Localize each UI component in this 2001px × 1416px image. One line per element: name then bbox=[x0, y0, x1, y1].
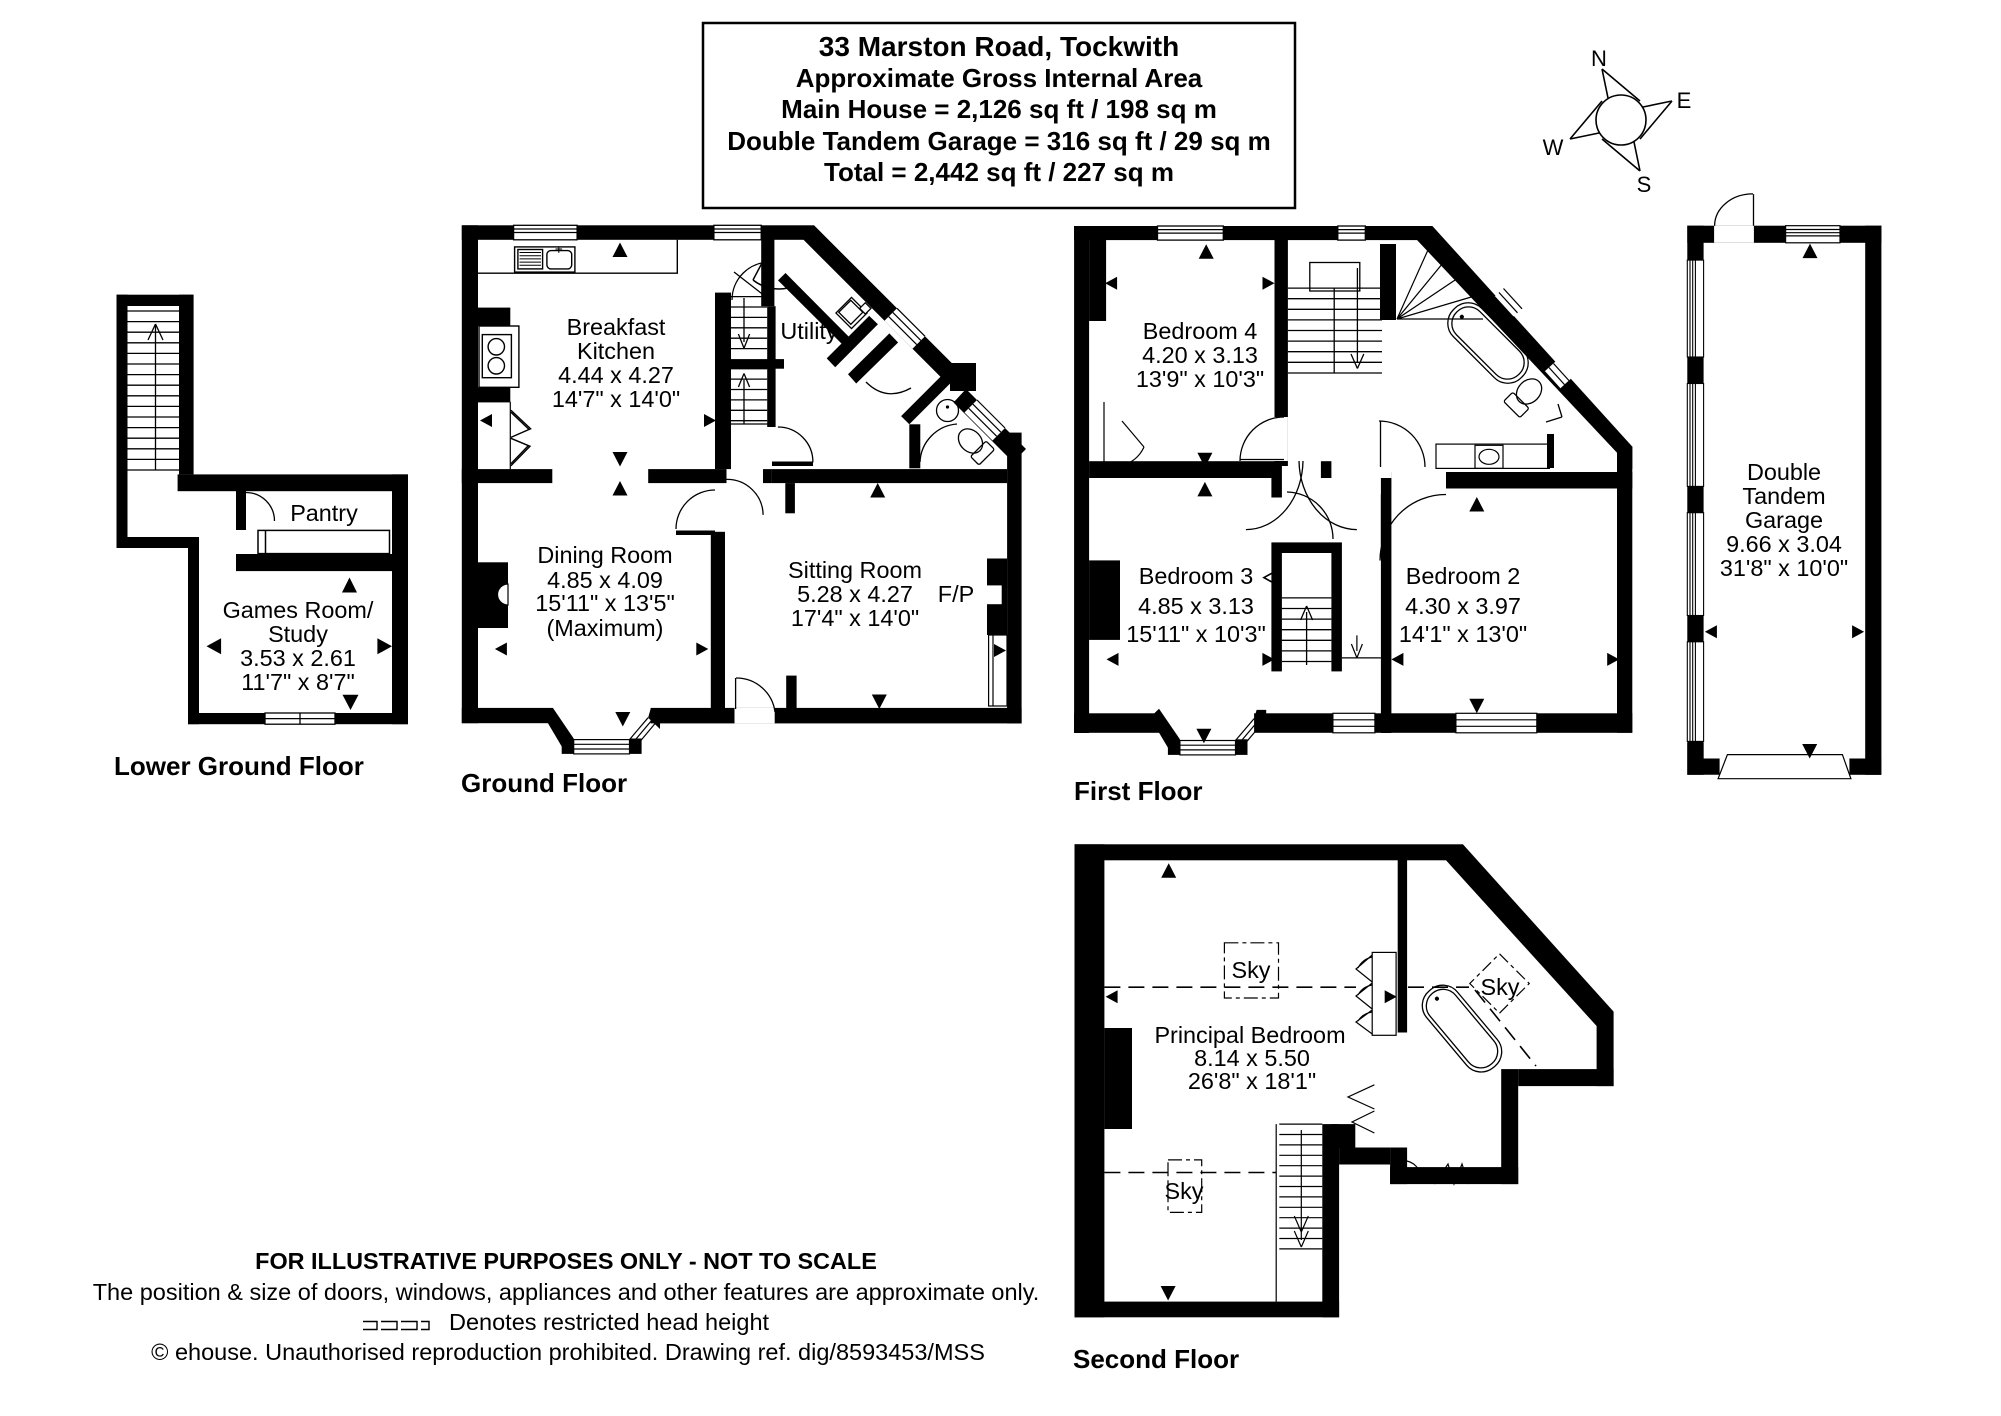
svg-text:4.44 x 4.27: 4.44 x 4.27 bbox=[558, 362, 674, 388]
svg-text:Sky: Sky bbox=[1481, 974, 1520, 1000]
svg-text:9.66 x 3.04: 9.66 x 3.04 bbox=[1726, 531, 1842, 557]
svg-text:Breakfast: Breakfast bbox=[567, 314, 666, 340]
svg-text:Second Floor: Second Floor bbox=[1073, 1344, 1239, 1374]
svg-text:3.53 x 2.61: 3.53 x 2.61 bbox=[240, 645, 356, 671]
svg-text:Pantry: Pantry bbox=[290, 500, 358, 526]
svg-text:Sky: Sky bbox=[1232, 957, 1271, 983]
svg-text:Bedroom 4: Bedroom 4 bbox=[1143, 318, 1257, 344]
svg-text:(Maximum): (Maximum) bbox=[547, 615, 664, 641]
svg-text:Main House = 2,126 sq ft / 198: Main House = 2,126 sq ft / 198 sq m bbox=[781, 94, 1217, 124]
svg-text:Games Room/: Games Room/ bbox=[223, 597, 374, 623]
svg-text:Garage: Garage bbox=[1745, 507, 1823, 533]
svg-text:Bedroom 2: Bedroom 2 bbox=[1406, 563, 1520, 589]
svg-text:© ehouse. Unauthorised reprodu: © ehouse. Unauthorised reproduction proh… bbox=[151, 1339, 985, 1365]
svg-text:11'7" x 8'7": 11'7" x 8'7" bbox=[241, 669, 355, 695]
svg-text:The position & size of doors,: The position & size of doors, windows, a… bbox=[93, 1279, 1040, 1305]
svg-text:14'7" x 14'0": 14'7" x 14'0" bbox=[552, 386, 680, 412]
svg-text:26'8" x 18'1": 26'8" x 18'1" bbox=[1188, 1068, 1316, 1094]
svg-text:31'8" x 10'0": 31'8" x 10'0" bbox=[1720, 555, 1848, 581]
svg-text:4.20 x 3.13: 4.20 x 3.13 bbox=[1142, 342, 1258, 368]
svg-text:Dining Room: Dining Room bbox=[537, 542, 672, 568]
svg-text:33 Marston Road, Tockwith: 33 Marston Road, Tockwith bbox=[819, 31, 1179, 62]
svg-text:Ground Floor: Ground Floor bbox=[461, 768, 627, 798]
svg-text:FOR ILLUSTRATIVE PURPOSES ONLY: FOR ILLUSTRATIVE PURPOSES ONLY - NOT TO … bbox=[255, 1248, 877, 1274]
svg-text:Bedroom 3: Bedroom 3 bbox=[1139, 563, 1253, 589]
svg-text:15'11" x 13'5": 15'11" x 13'5" bbox=[535, 590, 675, 616]
svg-text:N: N bbox=[1591, 46, 1607, 71]
svg-text:Denotes restricted head height: Denotes restricted head height bbox=[449, 1309, 770, 1335]
svg-text:Kitchen: Kitchen bbox=[577, 338, 655, 364]
svg-text:14'1" x 13'0": 14'1" x 13'0" bbox=[1399, 621, 1527, 647]
svg-text:Total = 2,442 sq ft / 227 sq m: Total = 2,442 sq ft / 227 sq m bbox=[824, 157, 1174, 187]
svg-text:W: W bbox=[1543, 135, 1564, 160]
svg-text:F/P: F/P bbox=[938, 581, 974, 607]
svg-text:15'11" x 10'3": 15'11" x 10'3" bbox=[1126, 621, 1266, 647]
svg-text:4.85 x 3.13: 4.85 x 3.13 bbox=[1138, 593, 1254, 619]
svg-text:Sky: Sky bbox=[1165, 1178, 1204, 1204]
svg-text:17'4" x 14'0": 17'4" x 14'0" bbox=[791, 605, 919, 631]
svg-text:Double Tandem Garage = 316 sq: Double Tandem Garage = 316 sq ft / 29 sq… bbox=[727, 126, 1271, 156]
svg-text:Sitting Room: Sitting Room bbox=[788, 557, 922, 583]
svg-text:5.28 x 4.27: 5.28 x 4.27 bbox=[797, 581, 913, 607]
svg-text:Utility: Utility bbox=[780, 318, 837, 344]
svg-text:4.30 x 3.97: 4.30 x 3.97 bbox=[1405, 593, 1521, 619]
svg-text:Approximate Gross Internal Are: Approximate Gross Internal Area bbox=[796, 63, 1203, 93]
svg-text:Study: Study bbox=[268, 621, 328, 647]
svg-text:First Floor: First Floor bbox=[1074, 776, 1203, 806]
svg-text:Lower Ground Floor: Lower Ground Floor bbox=[114, 751, 364, 781]
svg-text:E: E bbox=[1677, 88, 1692, 113]
svg-text:S: S bbox=[1637, 172, 1652, 197]
svg-text:Tandem: Tandem bbox=[1742, 483, 1825, 509]
svg-text:Double: Double bbox=[1747, 459, 1821, 485]
svg-text:13'9" x 10'3": 13'9" x 10'3" bbox=[1136, 366, 1264, 392]
